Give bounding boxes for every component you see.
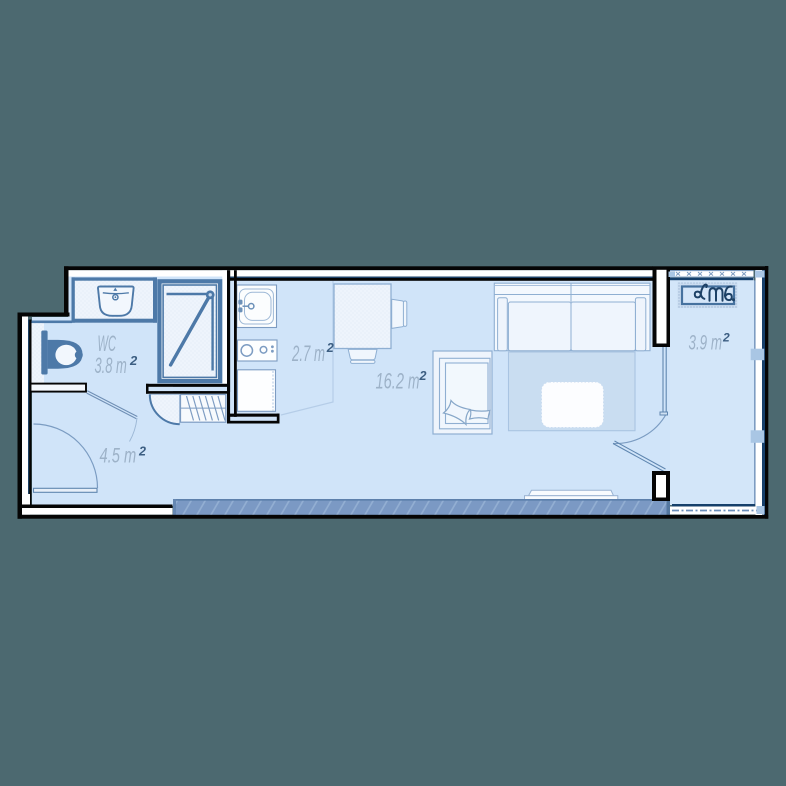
svg-text:2: 2	[419, 369, 427, 383]
svg-text:2.7 m: 2.7 m	[291, 341, 325, 366]
svg-text:3.8 m: 3.8 m	[95, 353, 127, 378]
svg-text:16.2: 16.2	[376, 369, 405, 394]
svg-text:2: 2	[326, 341, 334, 355]
svg-text:2: 2	[722, 331, 730, 345]
svg-text:4.5 m: 4.5 m	[100, 445, 137, 468]
svg-text:m: m	[408, 369, 420, 394]
svg-text:2: 2	[129, 353, 138, 368]
svg-text:2: 2	[138, 444, 146, 458]
svg-text:3.9 m: 3.9 m	[689, 332, 723, 355]
